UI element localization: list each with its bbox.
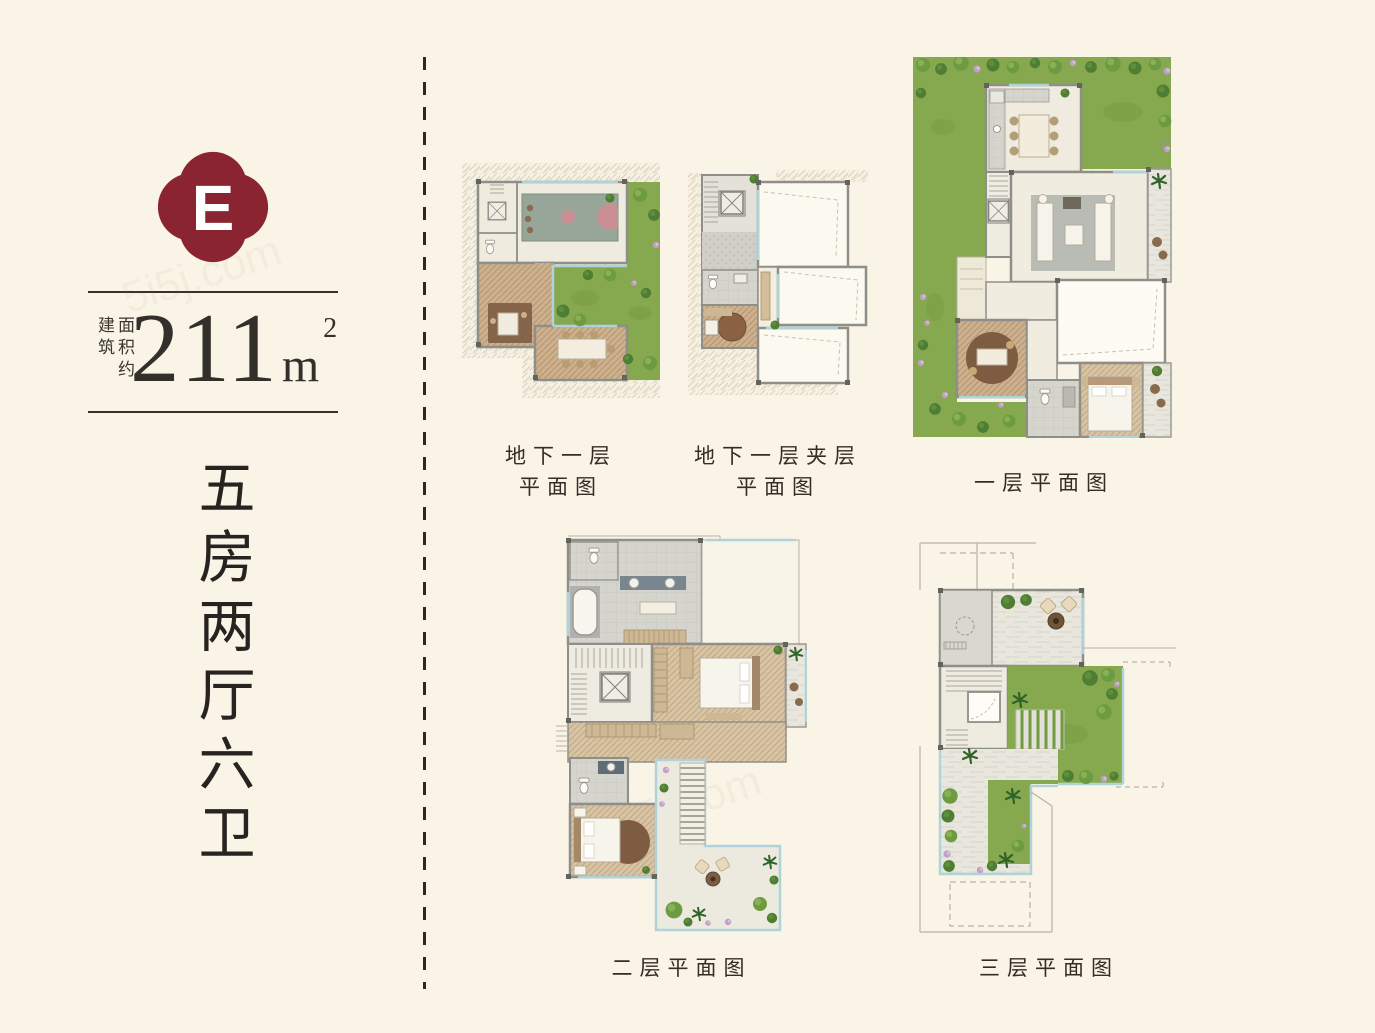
roof-terrace: [656, 760, 780, 930]
headline-vertical: 五房两厅六卫: [180, 458, 262, 872]
bedroom-2: [570, 804, 656, 877]
plan-mezzanine-caption: 地下一层夹层 平面图: [680, 441, 876, 503]
kitchen-dining: [986, 85, 1081, 172]
sofa: [1037, 203, 1053, 261]
elevator-icon: [721, 192, 743, 214]
stair-core: [986, 172, 1011, 257]
pergola-slats: [680, 763, 705, 844]
void-room-middle: [778, 267, 866, 325]
balcony: [786, 644, 806, 727]
plan-floor-3: [918, 534, 1180, 934]
terrace: [1143, 363, 1171, 437]
toilet-icon: [486, 240, 495, 254]
area-unit: m: [282, 339, 319, 392]
elevator-icon: [968, 692, 1000, 722]
plan-floor2-caption: 二层平面图: [556, 953, 807, 984]
closet: [624, 630, 686, 644]
hall: [986, 282, 1057, 320]
plan-floor1-caption: 一层平面图: [913, 468, 1175, 499]
bathroom: [702, 270, 758, 305]
badge-letter: E: [192, 172, 235, 244]
plan-basement: [460, 163, 662, 398]
void-room: [1057, 280, 1165, 363]
round-table: [718, 313, 746, 341]
stair-core: [940, 666, 1008, 749]
elevator-icon: [602, 674, 628, 700]
plan-basement-mezzanine: [688, 170, 868, 395]
elevator-icon: [488, 202, 506, 220]
game-room: [478, 182, 627, 263]
service-wing: [702, 175, 758, 348]
bedroom: [1080, 363, 1143, 437]
roof-outline-dashed: [950, 882, 1030, 926]
void-room-top: [758, 182, 848, 267]
hall: [702, 232, 758, 270]
utility-room: [940, 590, 992, 666]
roof-outline: [920, 543, 1036, 590]
dining-room: [535, 326, 627, 380]
plan-floor-1: [913, 57, 1175, 438]
plan-basement-caption: 地下一层 平面图: [460, 441, 662, 503]
armchair: [1063, 197, 1081, 209]
side-terrace: [1148, 169, 1171, 282]
bathroom: [1027, 380, 1080, 437]
master-bedroom: [652, 644, 786, 727]
corridor: [1027, 320, 1057, 380]
plan-floor3-caption: 三层平面图: [918, 953, 1180, 984]
area-label: 建筑 面积约: [94, 316, 134, 382]
toilet-icon: [579, 778, 589, 793]
tea-room: [957, 320, 1027, 397]
dining-table: [558, 339, 606, 359]
open-roof-area: [702, 540, 799, 644]
bathtub: [573, 589, 597, 635]
table: [498, 313, 518, 335]
area-superscript: 2: [323, 313, 337, 344]
area-label-col1: 建筑: [94, 316, 114, 360]
toilet-icon: [709, 275, 718, 289]
roof-lounge: [940, 590, 1083, 666]
plan-floor-2: [556, 532, 807, 932]
stair-core: [568, 644, 652, 722]
lounge: [702, 305, 758, 348]
elevator-icon: [989, 201, 1009, 221]
floorplan-sheet: E 建筑 面积约 211m2 五房两厅六卫 5i5j.com 5i5j.com …: [0, 0, 1375, 1033]
bathroom: [570, 758, 628, 804]
toilet-icon: [1040, 389, 1050, 404]
sofa: [1095, 203, 1111, 261]
bed: [1088, 377, 1132, 431]
table: [977, 349, 1007, 365]
dining-table: [1019, 115, 1049, 157]
toilet-icon: [589, 548, 599, 563]
coffee-table: [1065, 225, 1083, 245]
corridor: [535, 263, 553, 326]
area-divider-bottom: [88, 411, 338, 413]
living-room: [1011, 172, 1148, 282]
void-room-bottom: [758, 328, 848, 383]
section-divider-dashed: [423, 57, 426, 989]
master-bathroom: [568, 540, 702, 644]
